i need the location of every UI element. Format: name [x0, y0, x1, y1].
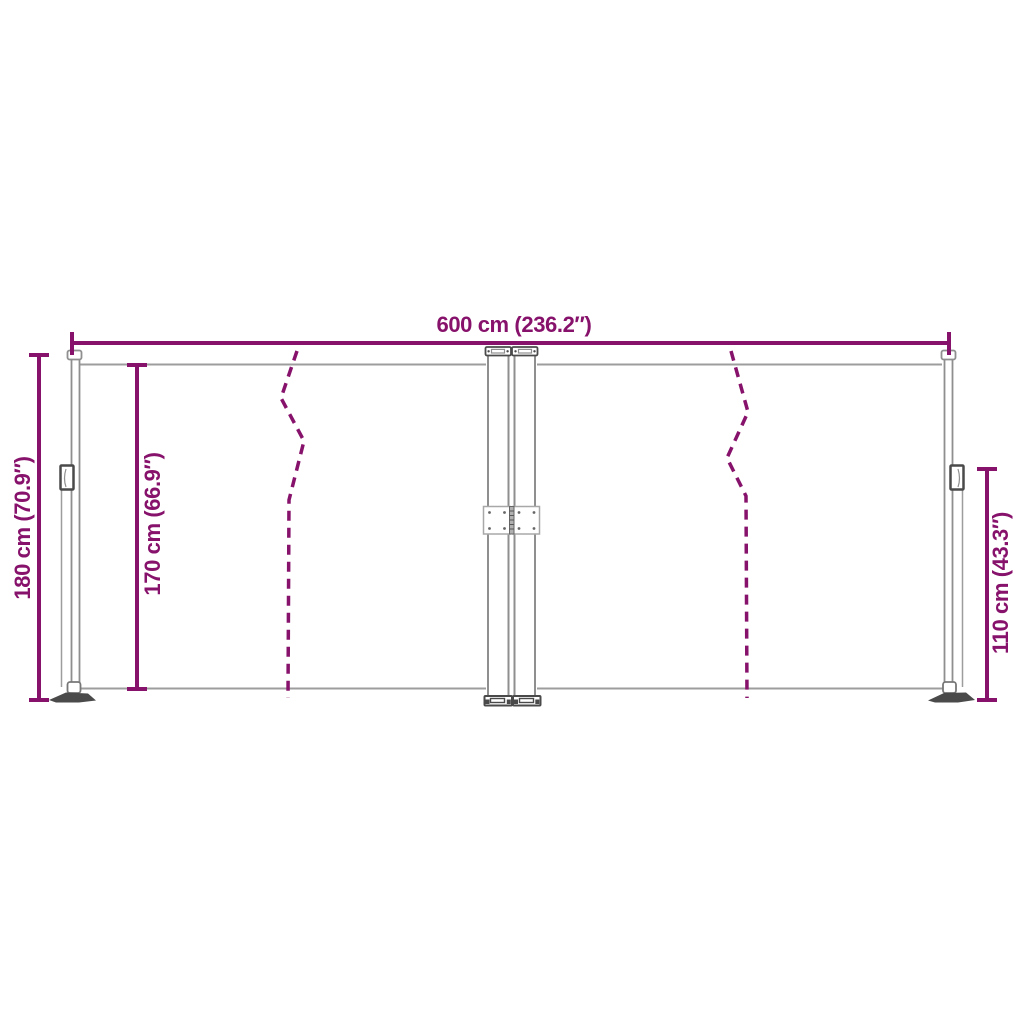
right-post-pole — [945, 356, 953, 692]
cassette-left-bottom-foot — [486, 700, 490, 705]
mount-screw — [533, 527, 536, 530]
fabric-panel-right — [537, 365, 944, 689]
left-post-pole — [72, 356, 80, 692]
cassette-right-top-screw — [533, 350, 535, 352]
product-dimension-diagram: 600 cm (236.2″) 180 cm (70.9″) 170 cm (6… — [0, 0, 1024, 1024]
dimension-label-fabric-height: 170 cm (66.9″) — [142, 452, 164, 595]
cassette-right-mount-plate — [513, 507, 540, 535]
right-post-base-plate — [928, 693, 975, 703]
cassette-right-top-screw — [514, 350, 516, 352]
right-post-handle — [951, 466, 964, 490]
right-end-post — [928, 351, 975, 703]
dimension-label-total-width: 600 cm (236.2″) — [437, 314, 592, 336]
break-line-right — [727, 351, 748, 698]
cassette-left-top-screw — [487, 350, 489, 352]
mount-screw — [488, 527, 491, 530]
cassette-left-bottom-foot — [507, 700, 511, 705]
cassette-right-bottom-foot — [535, 700, 539, 705]
left-post-bottom-cap — [68, 682, 81, 693]
mount-screw — [518, 527, 521, 530]
cassette-left-top-slot — [492, 349, 505, 353]
left-end-post — [49, 351, 96, 703]
mount-screw — [503, 527, 506, 530]
mount-screw — [503, 511, 506, 514]
right-post-bottom-cap — [943, 682, 956, 693]
left-post-handle — [61, 466, 74, 490]
cassette-left-bottom-slot — [491, 699, 505, 703]
mount-screw — [533, 511, 536, 514]
dimension-label-right-post-height: 110 cm (43.3″) — [990, 512, 1012, 654]
cassette-right-top-slot — [519, 349, 532, 353]
mount-screw — [518, 511, 521, 514]
break-line-left — [281, 351, 304, 698]
cassette-right-bottom-slot — [520, 699, 534, 703]
cassette-gap-hatch — [510, 507, 515, 535]
cassette-left-top-screw — [506, 350, 508, 352]
mount-screw — [488, 511, 491, 514]
cassette-left-mount-plate — [484, 507, 511, 535]
cassette-right-bottom-foot — [514, 700, 518, 705]
left-post-top-cap — [68, 351, 82, 360]
left-post-base-plate — [49, 693, 96, 703]
dimension-label-total-height: 180 cm (70.9″) — [12, 456, 34, 599]
center-cassette — [484, 347, 541, 706]
